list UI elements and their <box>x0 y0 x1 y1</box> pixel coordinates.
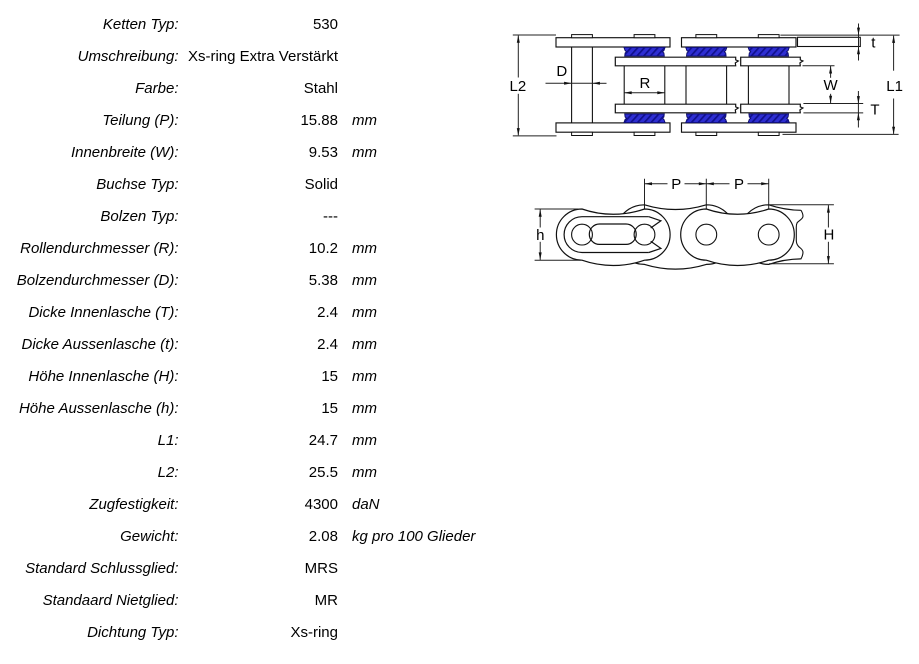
svg-text:P: P <box>671 176 681 193</box>
svg-text:L2: L2 <box>510 78 527 95</box>
svg-text:W: W <box>824 77 839 94</box>
svg-text:L1: L1 <box>886 78 903 95</box>
svg-text:D: D <box>556 63 567 80</box>
svg-text:T: T <box>870 101 879 118</box>
svg-text:P: P <box>734 176 744 193</box>
svg-text:t: t <box>871 34 876 51</box>
svg-text:H: H <box>824 227 835 244</box>
svg-text:h: h <box>536 227 544 244</box>
svg-text:R: R <box>640 75 651 92</box>
